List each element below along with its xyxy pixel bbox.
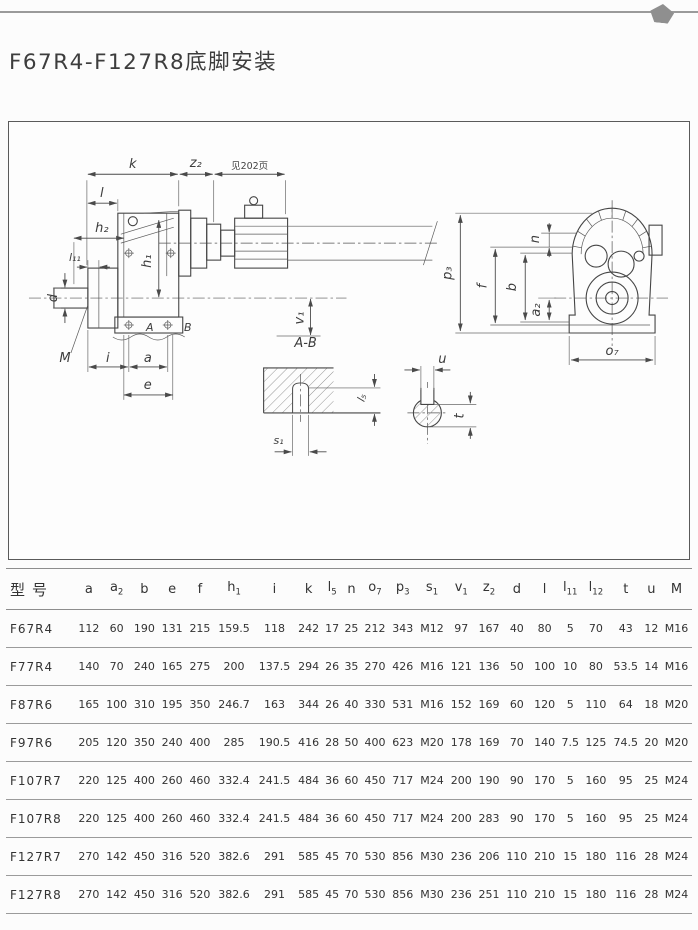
dimension-cell: 116 <box>610 876 642 914</box>
model-cell: F87R6 <box>6 686 75 724</box>
dimension-cell: 242 <box>295 610 323 648</box>
dimension-cell: 260 <box>158 800 186 838</box>
dimension-cell: 142 <box>103 838 131 876</box>
dimension-cell: 585 <box>295 838 323 876</box>
dimension-cell: 169 <box>475 724 503 762</box>
dimension-cell: 165 <box>75 686 103 724</box>
dimension-cell: M16 <box>661 648 692 686</box>
dimension-cell: M30 <box>417 838 448 876</box>
dimension-cell: M24 <box>661 876 692 914</box>
front-view: p₃ f b a₂ n o₇ <box>440 200 668 365</box>
section-a-b: A-B l₅ s₁ <box>264 336 381 456</box>
dimension-cell: 856 <box>389 838 417 876</box>
dimension-cell: 15 <box>558 876 582 914</box>
dimension-table-body: F67R411260190131215159.51182421725212343… <box>6 610 692 914</box>
side-view: k z₂ 见202页 l h₂ l₁₁ d M h₁ v₁ A B <box>29 156 438 400</box>
table-row: F107R8220125400260460332.4241.5484366045… <box>6 800 692 838</box>
dimension-cell: 167 <box>475 610 503 648</box>
dimension-cell: M20 <box>661 686 692 724</box>
dimension-cell: 275 <box>186 648 214 686</box>
table-row: F87R6165100310195350246.7163344264033053… <box>6 686 692 724</box>
dimension-cell: 190 <box>131 610 159 648</box>
dimension-cell: 220 <box>75 762 103 800</box>
dimension-cell: 270 <box>361 648 389 686</box>
dimension-cell: 28 <box>322 724 341 762</box>
dim-label-n: n <box>528 235 543 243</box>
dimension-cell: 400 <box>131 800 159 838</box>
bolt-mark-a <box>124 320 134 330</box>
dimension-cell: 152 <box>447 686 475 724</box>
dimension-cell: 426 <box>389 648 417 686</box>
table-row: F77R414070240165275200137.52942635270426… <box>6 648 692 686</box>
dimension-cell: 163 <box>254 686 294 724</box>
dimension-cell: M24 <box>417 762 448 800</box>
table-row: F67R411260190131215159.51182421725212343… <box>6 610 692 648</box>
column-header: d <box>503 569 531 610</box>
dimension-cell: 125 <box>103 762 131 800</box>
model-cell: F67R4 <box>6 610 75 648</box>
dimension-cell: 200 <box>447 800 475 838</box>
dimension-cell: 210 <box>531 876 559 914</box>
column-header: l5 <box>322 569 341 610</box>
dimension-cell: 200 <box>447 762 475 800</box>
model-cell: F107R8 <box>6 800 75 838</box>
model-cell: F107R7 <box>6 762 75 800</box>
dimension-cell: 520 <box>186 876 214 914</box>
dimension-cell: 70 <box>582 610 610 648</box>
dimension-cell: 110 <box>503 876 531 914</box>
dimension-cell: 350 <box>131 724 159 762</box>
dim-label-d: d <box>46 293 61 302</box>
dimension-cell: 95 <box>610 800 642 838</box>
column-header: f <box>186 569 214 610</box>
dimension-cell: 251 <box>475 876 503 914</box>
dimension-cell: 40 <box>342 686 361 724</box>
dimension-cell: 120 <box>531 686 559 724</box>
dimension-cell: 26 <box>322 648 341 686</box>
dim-label-a: a <box>144 351 152 366</box>
dimension-cell: 344 <box>295 686 323 724</box>
column-header: v1 <box>447 569 475 610</box>
dimension-cell: 35 <box>342 648 361 686</box>
dimension-cell: 260 <box>158 762 186 800</box>
column-header: e <box>158 569 186 610</box>
dimension-cell: 343 <box>389 610 417 648</box>
table-row: F107R7220125400260460332.4241.5484366045… <box>6 762 692 800</box>
dim-label-k: k <box>129 157 137 172</box>
dimension-cell: 210 <box>531 838 559 876</box>
column-header: b <box>131 569 159 610</box>
dimension-cell: 180 <box>582 876 610 914</box>
dimension-cell: 70 <box>503 724 531 762</box>
dimension-cell: M12 <box>417 610 448 648</box>
section-title: A-B <box>293 336 317 351</box>
shaft-cross-section: u t <box>404 352 476 444</box>
dimension-cell: 131 <box>158 610 186 648</box>
dim-label-a2: a₂ <box>529 303 544 316</box>
dimension-cell: 121 <box>447 648 475 686</box>
dim-label-s1: s₁ <box>274 434 284 447</box>
dimension-cell: 5 <box>558 686 582 724</box>
dimension-cell: M24 <box>417 800 448 838</box>
column-header: n <box>342 569 361 610</box>
dimension-cell: 70 <box>342 838 361 876</box>
dimension-cell: 236 <box>447 876 475 914</box>
dimension-cell: 178 <box>447 724 475 762</box>
top-rule <box>0 11 698 13</box>
dimension-cell: M16 <box>661 610 692 648</box>
dim-label-v1: v₁ <box>293 312 308 325</box>
dimension-cell: 382.6 <box>214 876 254 914</box>
table-row: F127R8270142450316520382.629158545705308… <box>6 876 692 914</box>
dimension-cell: 125 <box>582 724 610 762</box>
dim-label-m: M <box>59 351 70 366</box>
dimension-cell: 116 <box>610 838 642 876</box>
dimension-cell: 95 <box>610 762 642 800</box>
dimension-cell: 717 <box>389 762 417 800</box>
dimension-cell: 400 <box>131 762 159 800</box>
dimension-cell: 316 <box>158 838 186 876</box>
dimension-cell: 212 <box>361 610 389 648</box>
dimension-cell: 159.5 <box>214 610 254 648</box>
dimension-cell: 291 <box>254 876 294 914</box>
column-header: t <box>610 569 642 610</box>
dimension-cell: 285 <box>214 724 254 762</box>
column-header: z2 <box>475 569 503 610</box>
column-header: a <box>75 569 103 610</box>
dim-label-h2: h₂ <box>95 221 108 236</box>
dimension-cell: M16 <box>417 648 448 686</box>
dimension-cell: M20 <box>661 724 692 762</box>
dimension-cell: 28 <box>642 876 661 914</box>
dimension-cell: 160 <box>582 800 610 838</box>
dimension-cell: 80 <box>531 610 559 648</box>
dimension-cell: 137.5 <box>254 648 294 686</box>
dimension-cell: 200 <box>214 648 254 686</box>
dimension-cell: M16 <box>417 686 448 724</box>
dimension-cell: 70 <box>342 876 361 914</box>
dimension-cell: 136 <box>475 648 503 686</box>
dimension-cell: 165 <box>158 648 186 686</box>
dim-label-e: e <box>144 378 152 393</box>
dimension-cell: 50 <box>342 724 361 762</box>
dimension-cell: 717 <box>389 800 417 838</box>
dimension-cell: 330 <box>361 686 389 724</box>
dimension-cell: 236 <box>447 838 475 876</box>
dim-label-i: i <box>106 351 110 366</box>
dimension-cell: 36 <box>322 800 341 838</box>
dimension-cell: 7.5 <box>558 724 582 762</box>
dim-label-l: l <box>100 186 104 201</box>
dimension-cell: 241.5 <box>254 800 294 838</box>
dimension-cell: 450 <box>131 838 159 876</box>
dimension-cell: 20 <box>642 724 661 762</box>
dimension-cell: 125 <box>103 800 131 838</box>
dimension-cell: 142 <box>103 876 131 914</box>
model-cell: F77R4 <box>6 648 75 686</box>
dimension-cell: 110 <box>582 686 610 724</box>
dimension-cell: 25 <box>642 800 661 838</box>
dimension-cell: 270 <box>75 876 103 914</box>
dimension-cell: 118 <box>254 610 294 648</box>
technical-drawing-frame: k z₂ 见202页 l h₂ l₁₁ d M h₁ v₁ A B <box>8 121 690 560</box>
dimension-cell: 350 <box>186 686 214 724</box>
dimension-cell: 460 <box>186 800 214 838</box>
dimension-cell: M24 <box>661 762 692 800</box>
column-header: s1 <box>417 569 448 610</box>
dimension-cell: 294 <box>295 648 323 686</box>
column-header: o7 <box>361 569 389 610</box>
dimension-cell: 12 <box>642 610 661 648</box>
dimension-cell: 450 <box>361 800 389 838</box>
dimension-cell: 14 <box>642 648 661 686</box>
dimension-cell: 530 <box>361 838 389 876</box>
dimension-cell: 45 <box>322 876 341 914</box>
dimension-cell: 460 <box>186 762 214 800</box>
dimension-cell: M24 <box>661 838 692 876</box>
dimension-cell: 180 <box>582 838 610 876</box>
dimension-cell: M20 <box>417 724 448 762</box>
dimension-cell: 310 <box>131 686 159 724</box>
dimension-cell: 382.6 <box>214 838 254 876</box>
dimension-cell: 17 <box>322 610 341 648</box>
label-a-point: A <box>145 321 154 334</box>
table-row: F97R6205120350240400285190.5416285040062… <box>6 724 692 762</box>
dimension-cell: 120 <box>103 724 131 762</box>
dimension-cell: 450 <box>361 762 389 800</box>
dimension-cell: 623 <box>389 724 417 762</box>
dimension-cell: 205 <box>75 724 103 762</box>
dimension-cell: 270 <box>75 838 103 876</box>
dimension-cell: 70 <box>103 648 131 686</box>
dim-label-l11: l₁₁ <box>69 251 81 264</box>
dimension-cell: 26 <box>322 686 341 724</box>
column-header: i <box>254 569 294 610</box>
dimension-cell: 170 <box>531 762 559 800</box>
dim-label-l5: l₅ <box>355 392 370 403</box>
dimension-cell: 400 <box>361 724 389 762</box>
dimension-cell: 484 <box>295 800 323 838</box>
label-b-point: B <box>184 321 192 334</box>
dimension-cell: M24 <box>661 800 692 838</box>
dimension-cell: 531 <box>389 686 417 724</box>
dimension-cell: 45 <box>322 838 341 876</box>
column-header: l11 <box>558 569 582 610</box>
dimension-cell: 190 <box>475 762 503 800</box>
table-header-row: 型号aa2befh1ikl5no7p3s1v1z2dll11l12tuM <box>6 569 692 610</box>
dim-label-o7: o₇ <box>606 344 620 359</box>
column-header: h1 <box>214 569 254 610</box>
dimension-cell: 110 <box>503 838 531 876</box>
bolt-mark-b <box>163 320 173 330</box>
dimension-cell: 484 <box>295 762 323 800</box>
dimension-cell: 60 <box>342 762 361 800</box>
dimension-cell: 60 <box>342 800 361 838</box>
dimension-cell: 140 <box>531 724 559 762</box>
see-page-note: 见202页 <box>231 161 268 172</box>
dimension-cell: 169 <box>475 686 503 724</box>
dim-label-u: u <box>438 352 446 367</box>
dimension-table: 型号aa2befh1ikl5no7p3s1v1z2dll11l12tuM F67… <box>6 568 692 914</box>
dim-label-b: b <box>505 283 520 291</box>
dimension-cell: 283 <box>475 800 503 838</box>
dimension-cell: 5 <box>558 800 582 838</box>
dimension-cell: 53.5 <box>610 648 642 686</box>
column-header: p3 <box>389 569 417 610</box>
dim-label-t: t <box>452 412 467 418</box>
dimension-cell: 530 <box>361 876 389 914</box>
technical-drawing: k z₂ 见202页 l h₂ l₁₁ d M h₁ v₁ A B <box>9 122 689 559</box>
column-header: 型号 <box>6 569 75 610</box>
dimension-cell: 40 <box>503 610 531 648</box>
dim-label-h1: h₁ <box>140 254 155 267</box>
dimension-cell: 90 <box>503 800 531 838</box>
dimension-cell: 100 <box>531 648 559 686</box>
dimension-cell: 25 <box>642 762 661 800</box>
dimension-cell: 450 <box>131 876 159 914</box>
dimension-cell: 80 <box>582 648 610 686</box>
corner-gem-icon <box>649 3 675 24</box>
dimension-cell: 18 <box>642 686 661 724</box>
column-header: a2 <box>103 569 131 610</box>
dimension-cell: 36 <box>322 762 341 800</box>
dimension-cell: 60 <box>103 610 131 648</box>
dimension-cell: 206 <box>475 838 503 876</box>
dimension-cell: 5 <box>558 762 582 800</box>
model-cell: F127R7 <box>6 838 75 876</box>
dimension-cell: 332.4 <box>214 800 254 838</box>
dimension-cell: 400 <box>186 724 214 762</box>
dimension-cell: 240 <box>158 724 186 762</box>
dimension-cell: 64 <box>610 686 642 724</box>
dimension-cell: 74.5 <box>610 724 642 762</box>
model-cell: F97R6 <box>6 724 75 762</box>
dimension-cell: M30 <box>417 876 448 914</box>
dimension-cell: 215 <box>186 610 214 648</box>
dimension-cell: 140 <box>75 648 103 686</box>
dim-label-p3: p₃ <box>440 266 455 280</box>
dimension-cell: 43 <box>610 610 642 648</box>
dimension-cell: 585 <box>295 876 323 914</box>
column-header: u <box>642 569 661 610</box>
page-title: F67R4-F127R8底脚安装 <box>9 50 698 76</box>
dimension-cell: 520 <box>186 838 214 876</box>
dimension-cell: 100 <box>103 686 131 724</box>
dimension-cell: 240 <box>131 648 159 686</box>
dimension-cell: 190.5 <box>254 724 294 762</box>
dimension-cell: 332.4 <box>214 762 254 800</box>
dimension-cell: 5 <box>558 610 582 648</box>
dimension-cell: 416 <box>295 724 323 762</box>
dimension-cell: 195 <box>158 686 186 724</box>
column-header: l <box>531 569 559 610</box>
dim-label-z2: z₂ <box>189 156 202 171</box>
dimension-cell: 112 <box>75 610 103 648</box>
column-header: k <box>295 569 323 610</box>
dimension-cell: 220 <box>75 800 103 838</box>
dimension-cell: 160 <box>582 762 610 800</box>
dimension-cell: 246.7 <box>214 686 254 724</box>
model-cell: F127R8 <box>6 876 75 914</box>
dimension-cell: 316 <box>158 876 186 914</box>
dimension-cell: 90 <box>503 762 531 800</box>
dimension-cell: 291 <box>254 838 294 876</box>
dimension-cell: 15 <box>558 838 582 876</box>
dimension-cell: 25 <box>342 610 361 648</box>
dimension-cell: 97 <box>447 610 475 648</box>
dimension-cell: 10 <box>558 648 582 686</box>
dimension-cell: 241.5 <box>254 762 294 800</box>
table-row: F127R7270142450316520382.629158545705308… <box>6 838 692 876</box>
dimension-cell: 28 <box>642 838 661 876</box>
dimension-cell: 50 <box>503 648 531 686</box>
dimension-cell: 856 <box>389 876 417 914</box>
dimension-cell: 170 <box>531 800 559 838</box>
column-header: l12 <box>582 569 610 610</box>
dimension-cell: 60 <box>503 686 531 724</box>
column-header: M <box>661 569 692 610</box>
dim-label-f: f <box>475 281 490 288</box>
